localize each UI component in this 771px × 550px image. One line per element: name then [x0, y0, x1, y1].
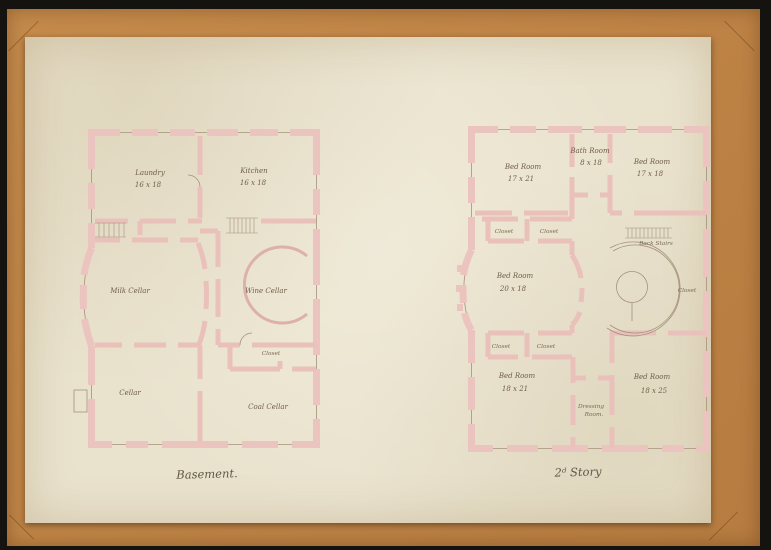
- room-label-closet-s1: Closet: [492, 344, 511, 350]
- room-size-bed-w: 20 x 18: [499, 285, 527, 293]
- drawing-sheet: Laundry 16 x 18 Kitchen 16 x 18 Milk Cel…: [25, 37, 711, 523]
- basement-plan-drawing: Laundry 16 x 18 Kitchen 16 x 18 Milk Cel…: [70, 117, 335, 462]
- room-label-closet-e: Closet: [678, 288, 697, 294]
- story-room-labels: Bed Room 17 x 21 Bath Room 8 x 18 Bed Ro…: [492, 147, 697, 418]
- basement-exterior-step: [74, 390, 87, 412]
- scanned-drawing: Laundry 16 x 18 Kitchen 16 x 18 Milk Cel…: [0, 0, 771, 550]
- room-label-bed-ne: Bed Room: [633, 158, 671, 166]
- room-label-laundry: Laundry: [134, 169, 166, 177]
- room-label-closet: Closet: [262, 351, 281, 357]
- room-label-bed-se: Bed Room: [633, 373, 671, 381]
- room-label-bath: Bath Room: [569, 147, 610, 155]
- spiral-stair: [607, 242, 680, 336]
- room-label-closet-s2: Closet: [537, 344, 556, 350]
- mat-corner-seam: [724, 21, 754, 51]
- room-size-bed-sw: 18 x 21: [502, 385, 528, 393]
- room-label-bed-nw: Bed Room: [504, 163, 542, 171]
- room-label-back-stairs: Back Stairs: [638, 241, 673, 247]
- room-label-wine-cellar: Wine Cellar: [245, 287, 287, 295]
- room-size-bed-se: 18 x 25: [641, 387, 668, 395]
- room-size-bed-nw: 17 x 21: [508, 175, 534, 183]
- mat-corner-seam: [709, 512, 738, 541]
- room-label-dressing-1: Dressing: [577, 404, 604, 410]
- room-label-bed-sw: Bed Room: [498, 372, 536, 380]
- room-size-bath: 8 x 18: [580, 159, 602, 167]
- second-story-plan-drawing: Bed Room 17 x 21 Bath Room 8 x 18 Bed Ro…: [450, 115, 715, 465]
- wine-cellar-curved-wall: [244, 247, 307, 323]
- room-label-kitchen: Kitchen: [239, 167, 268, 175]
- caption-second-story: 2ᵈ Story: [554, 464, 601, 479]
- room-label-dressing-2: Room.: [584, 412, 604, 418]
- back-stairs-hatch: [625, 228, 672, 238]
- room-label-milk-cellar: Milk Cellar: [109, 287, 150, 295]
- room-label-bed-w: Bed Room: [496, 272, 534, 280]
- room-label-closet-n1: Closet: [495, 229, 514, 235]
- room-label-cellar: Cellar: [119, 389, 141, 397]
- bow-window-pilasters: [456, 265, 463, 311]
- caption-basement: Basement.: [176, 466, 238, 482]
- room-size-kitchen: 16 x 18: [240, 179, 267, 187]
- room-label-closet-n2: Closet: [540, 229, 559, 235]
- room-size-laundry: 16 x 18: [135, 181, 162, 189]
- room-size-bed-ne: 17 x 18: [637, 170, 664, 178]
- room-label-coal-cellar: Coal Cellar: [248, 403, 288, 411]
